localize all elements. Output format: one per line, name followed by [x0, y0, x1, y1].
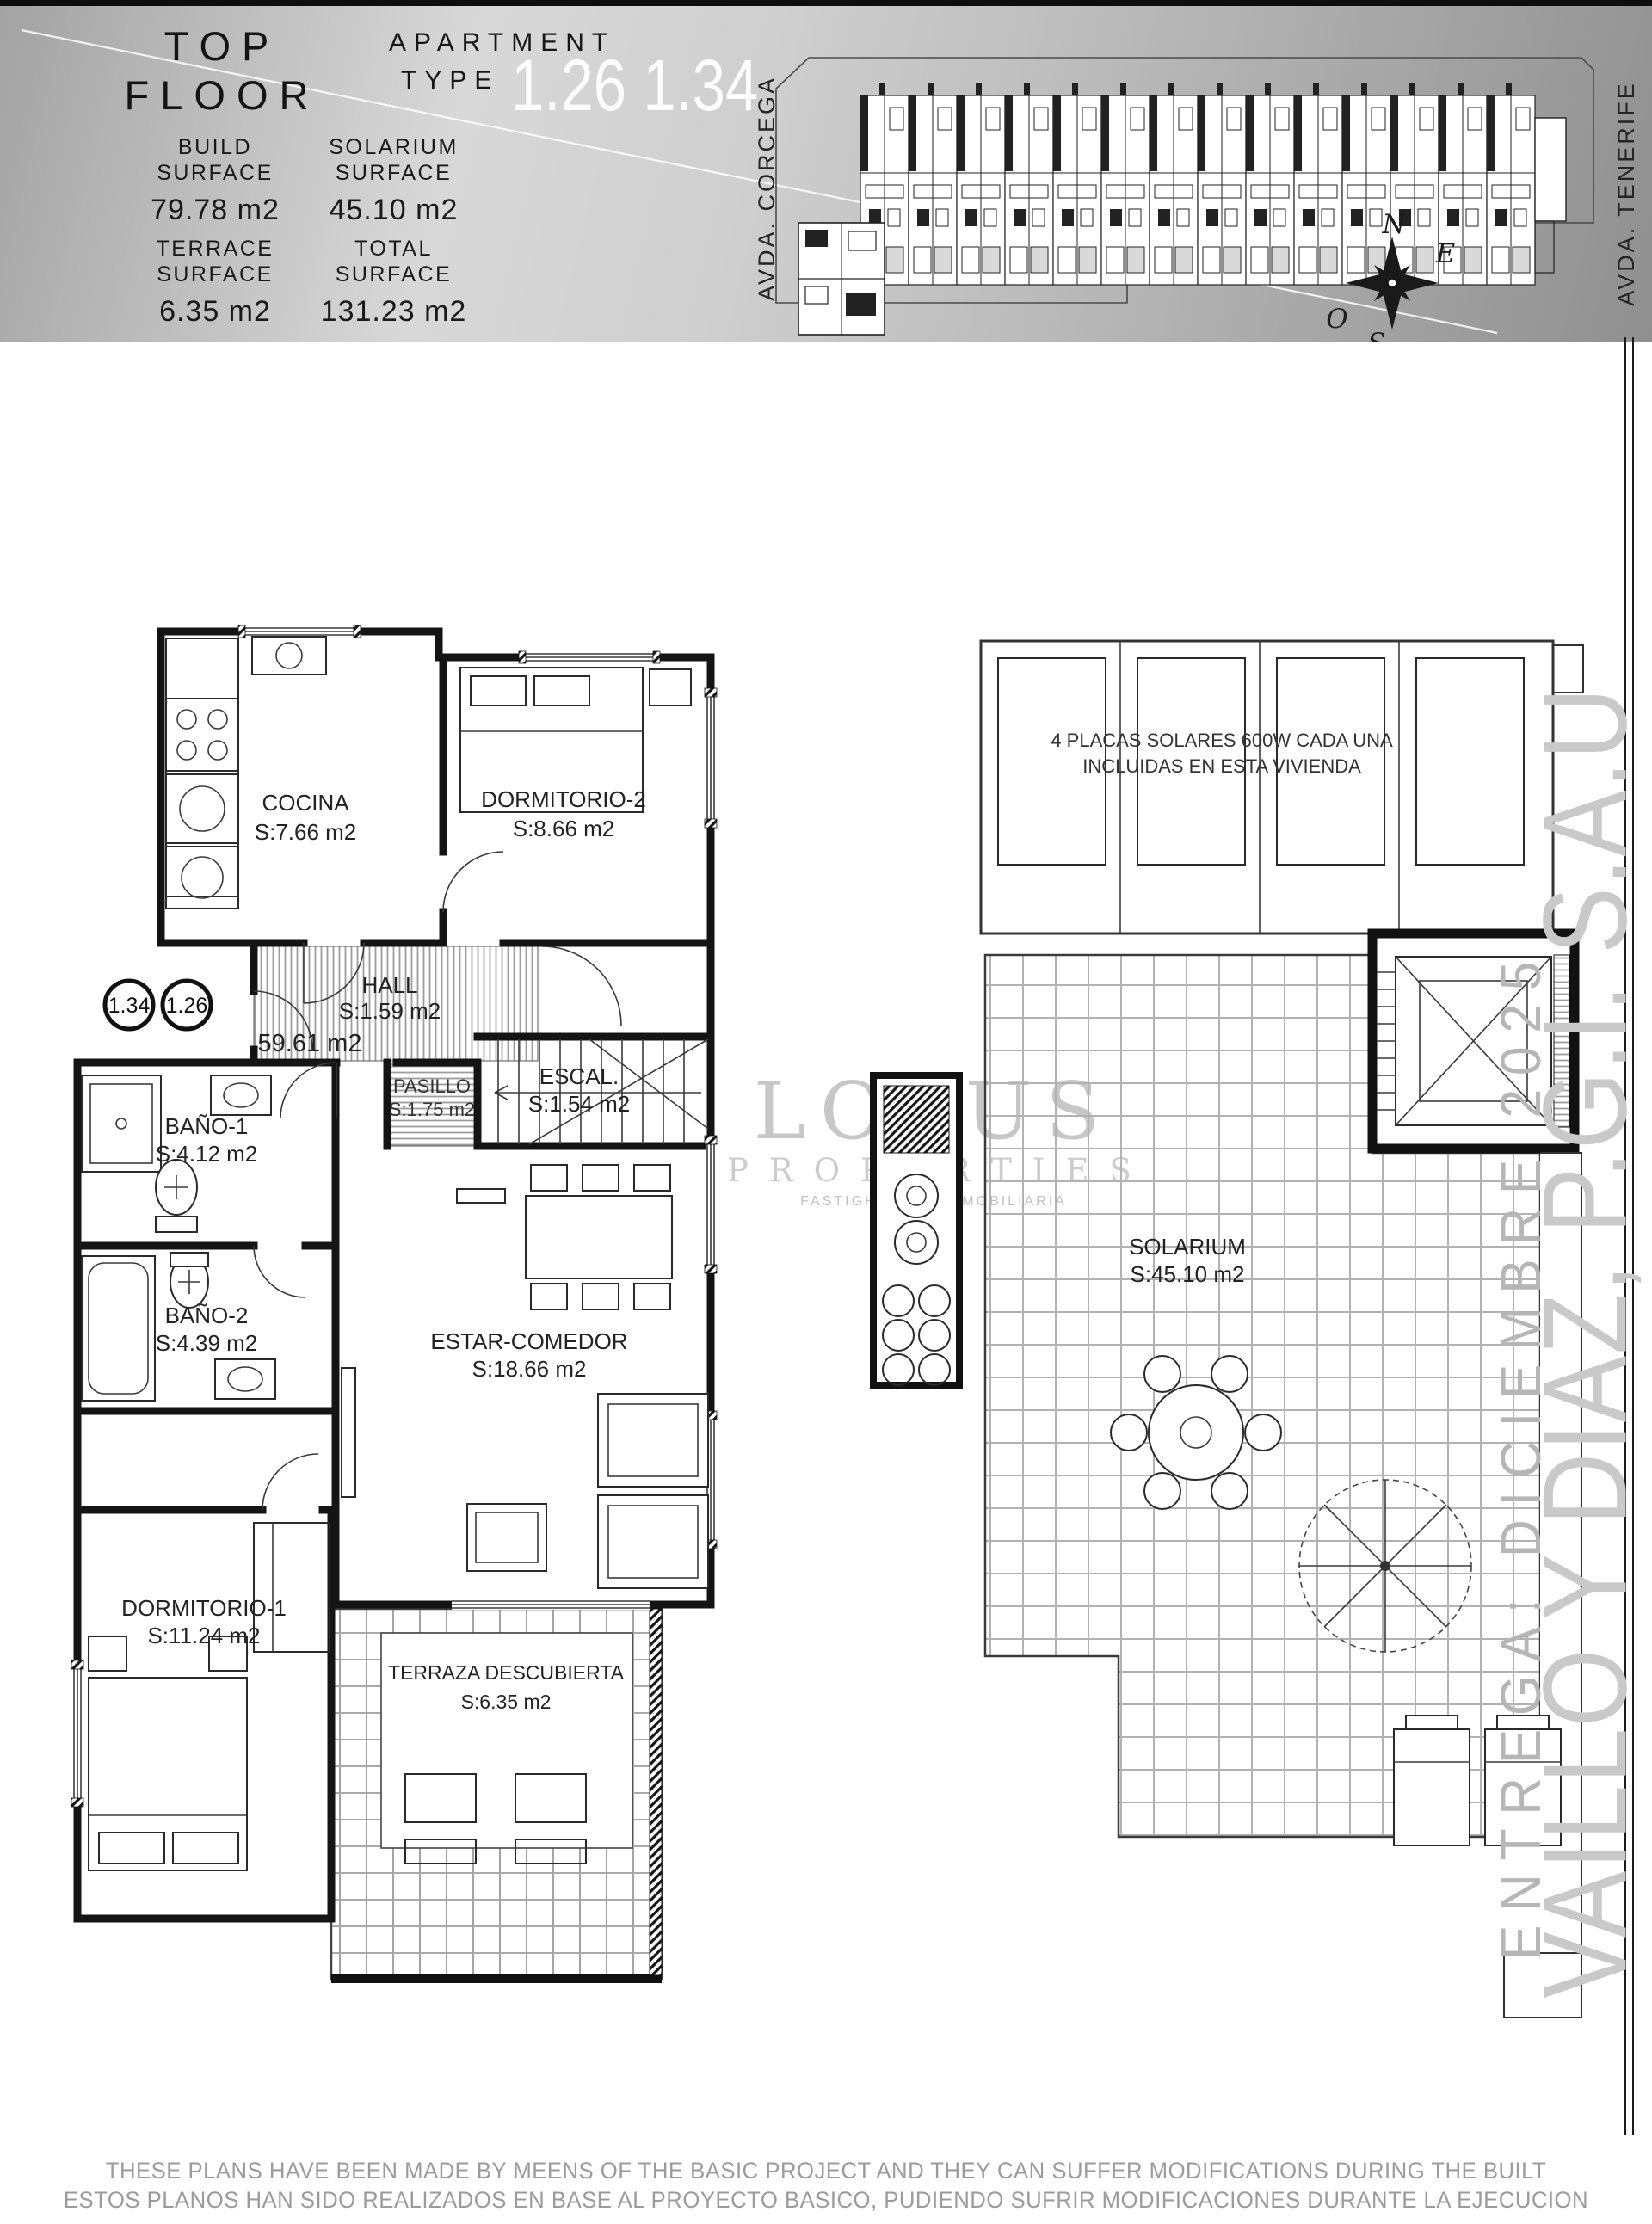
room-label-dormitorio1: DORMITORIO-1 [121, 1595, 287, 1621]
room-label-pasillo: PASILLO [393, 1075, 471, 1097]
stat-label: BUILD [178, 135, 252, 159]
floor-plan-apartment: 1.34 1.26 COCINA S:7.66 m2 DORMITORIO-2 … [47, 594, 753, 2005]
stat-value: 131.23 m2 [293, 295, 495, 329]
apartment-label-2: TYPE [401, 66, 499, 95]
stat-label: SURFACE [157, 262, 274, 286]
header-band: N E O S AVDA. CORCEGA AVDA. TENERIFE TOP… [0, 0, 1652, 342]
street-label-tenerife: AVDA. TENERIFE [1613, 81, 1639, 306]
stat-build-surface: BUILD SURFACE 79.78 m2 [120, 135, 310, 227]
room-area-cocina: S:7.66 m2 [255, 819, 357, 845]
stat-solarium-surface: SOLARIUM SURFACE 45.10 m2 [293, 135, 495, 227]
stat-total-surface: TOTAL SURFACE 131.23 m2 [293, 237, 495, 329]
room-label-solarium: SOLARIUM [1129, 1234, 1246, 1260]
room-area-dormitorio1: S:11.24 m2 [147, 1623, 260, 1648]
stat-label: SURFACE [336, 262, 453, 286]
room-area-escalera: S:1.54 m2 [528, 1091, 631, 1117]
room-area-bano1: S:4.12 m2 [156, 1141, 258, 1167]
compass-n: N [1381, 209, 1407, 240]
solar-note-line1: 4 PLACAS SOLARES 600W CADA UNA [1051, 730, 1393, 751]
room-area-bano2: S:4.39 m2 [156, 1330, 258, 1356]
room-label-hall: HALL [361, 972, 417, 998]
apartment-numbers: 1.26 1.34 [511, 44, 723, 127]
room-area-pasillo: S:1.75 m2 [389, 1099, 475, 1120]
stat-value: 79.78 m2 [120, 194, 310, 227]
title-top: TOP [50, 22, 394, 71]
compass-w: O [1326, 304, 1347, 335]
bedroom1-furniture [89, 1523, 330, 1870]
room-label-dormitorio2: DORMITORIO-2 [481, 786, 646, 812]
developer-text: VAILLO Y DIAZ, P.G.I. S.A.U [1518, 686, 1652, 1998]
room-area-terraza: S:6.35 m2 [461, 1691, 552, 1713]
stat-label: SURFACE [157, 161, 274, 185]
room-area-hall: S:1.59 m2 [339, 998, 441, 1024]
disclaimer-english: THESE PLANS HAVE BEEN MADE BY MEENS OF T… [25, 2158, 1627, 2184]
room-label-terraza: TERRAZA DESCUBIERTA [388, 1661, 625, 1684]
room-label-bano1: BAÑO-1 [165, 1113, 249, 1139]
built-area-total: 59.61 m2 [258, 1030, 362, 1057]
room-area-solarium: S:45.10 m2 [1131, 1261, 1245, 1287]
stat-label: TERRACE [157, 237, 274, 261]
floor-plan-sheet: N E O S AVDA. CORCEGA AVDA. TENERIFE TOP… [0, 0, 1652, 2224]
solar-note-line2: INCLUIDAS EN ESTA VIVIENDA [1082, 755, 1361, 777]
building-strip [860, 83, 1566, 285]
parasol [1299, 1480, 1471, 1652]
compass-e: E [1435, 238, 1456, 269]
solar-panel-block: 4 PLACAS SOLARES 600W CADA UNA INCLUIDAS… [981, 641, 1583, 933]
room-label-escalera: ESCAL. [539, 1063, 619, 1089]
floor-plan-solarium: 4 PLACAS SOLARES 600W CADA UNA INCLUIDAS… [860, 594, 1592, 2022]
title-bottom: FLOOR [50, 71, 394, 120]
badge-1-34: 1.34 [108, 994, 151, 1018]
stat-terrace-surface: TERRACE SURFACE 6.35 m2 [120, 237, 310, 329]
stat-label: TOTAL [354, 237, 433, 261]
stat-label: SURFACE [336, 161, 453, 185]
badge-1-26: 1.26 [166, 994, 208, 1018]
disclaimer-spanish: ESTOS PLANOS HAN SIDO REALIZADOS EN BASE… [25, 2187, 1627, 2214]
utility-shaft [873, 1075, 959, 1385]
room-label-bano2: BAÑO-2 [165, 1303, 249, 1328]
room-label-cocina: COCINA [262, 790, 349, 816]
page-title: TOP FLOOR [50, 22, 394, 120]
stat-value: 45.10 m2 [293, 194, 495, 227]
stat-value: 6.35 m2 [120, 295, 310, 329]
unit-badges[interactable]: 1.34 1.26 [105, 981, 211, 1029]
room-area-dormitorio2: S:8.66 m2 [513, 816, 615, 841]
compass-s: S [1367, 328, 1385, 342]
room-label-estar: ESTAR-COMEDOR [430, 1328, 627, 1354]
detached-building [798, 223, 885, 335]
room-area-estar: S:18.66 m2 [472, 1356, 587, 1382]
stat-label: SOLARIUM [329, 135, 459, 159]
kitchen-fixtures [166, 637, 326, 909]
